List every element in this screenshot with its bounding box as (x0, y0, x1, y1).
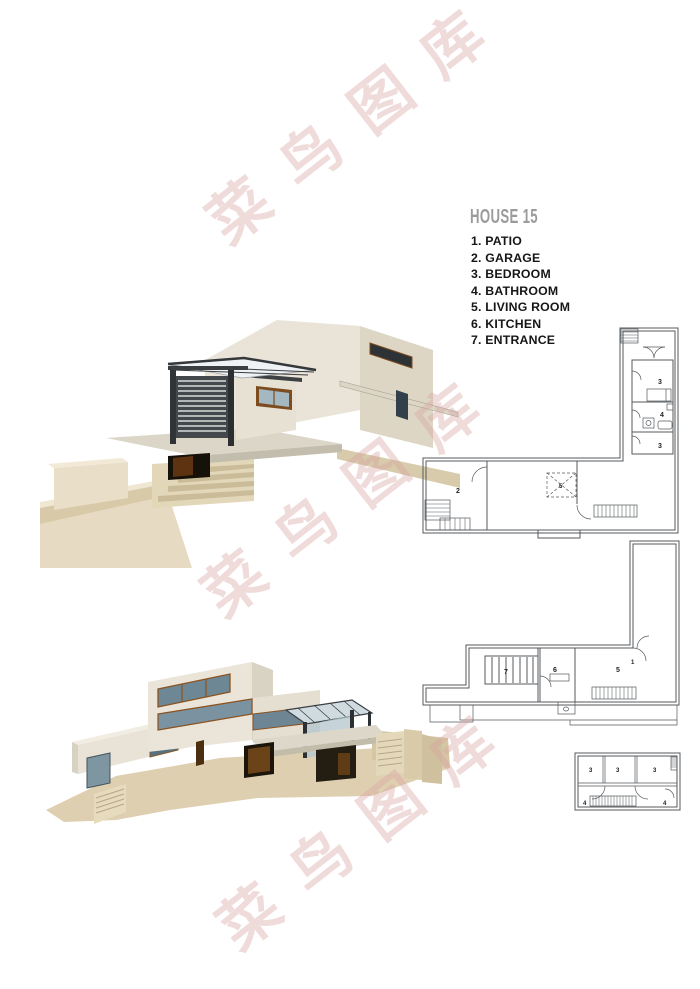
floor-plan-main: 1 7 6 5 (420, 538, 700, 730)
render-top-3d (40, 298, 460, 570)
plan1-stairs-bottom (538, 461, 637, 538)
legend-item-bathroom: 4. BATHROOM (471, 283, 570, 300)
room-label: 4 (660, 412, 664, 419)
plan2-lower-band (430, 705, 677, 725)
room-label: 5 (616, 667, 620, 674)
page-title: HOUSE 15 (470, 206, 538, 229)
room-label: 7 (504, 669, 508, 676)
plan2-patio-door (633, 636, 649, 661)
render-bottom-3d (20, 598, 450, 860)
plan3-hatch (671, 757, 677, 770)
plan1-entry-double-door (643, 347, 665, 358)
room-label: 6 (553, 667, 557, 674)
room-label: 4 (663, 801, 667, 807)
plan3-stairs (590, 796, 636, 806)
plan3-walls (578, 756, 677, 799)
legend-item-bedroom: 3. BEDROOM (471, 266, 570, 283)
room-label: 3 (589, 768, 593, 774)
room-label: 3 (658, 443, 662, 450)
room-label: 3 (653, 768, 657, 774)
floor-plan-bedrooms: 3 3 3 4 4 (572, 746, 684, 816)
legend-item-patio: 1. PATIO (471, 233, 570, 250)
legend-item-garage: 2. GARAGE (471, 250, 570, 267)
room-label: 1 (631, 660, 635, 666)
plan2-entrance-slats (485, 656, 538, 684)
terrain-and-steps (40, 448, 460, 568)
room-label: 5 (559, 484, 563, 490)
plan1-bedroom-wing (632, 360, 673, 454)
room-label: 3 (616, 768, 620, 774)
plan1-garage-wing (425, 461, 487, 530)
room-label: 3 (658, 379, 662, 386)
plan2-living-stairs (592, 687, 636, 699)
legend-item-living-room: 5. LIVING ROOM (471, 299, 570, 316)
floor-plan-upper: 3 4 3 2 5 (420, 324, 700, 540)
building-massing (106, 320, 458, 480)
presentation-page: HOUSE 15 1. PATIO 2. GARAGE 3. BEDROOM 4… (0, 0, 700, 989)
plan2-kitchen (538, 648, 575, 714)
room-label: 2 (456, 488, 460, 495)
room-label: 4 (583, 801, 587, 807)
